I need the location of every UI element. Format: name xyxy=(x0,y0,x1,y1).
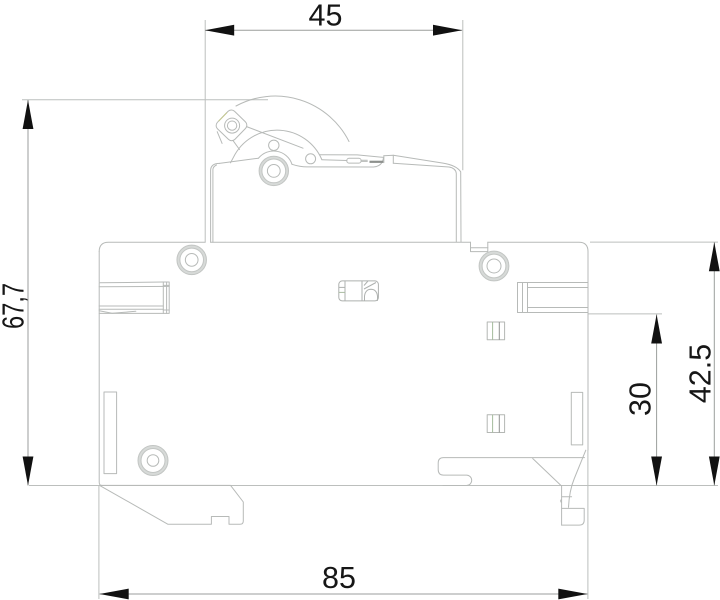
svg-text:30: 30 xyxy=(624,382,658,416)
svg-text:85: 85 xyxy=(322,561,356,595)
svg-text:42.5: 42.5 xyxy=(684,344,718,403)
svg-text:67,7: 67,7 xyxy=(0,283,31,329)
svg-text:45: 45 xyxy=(309,0,343,33)
